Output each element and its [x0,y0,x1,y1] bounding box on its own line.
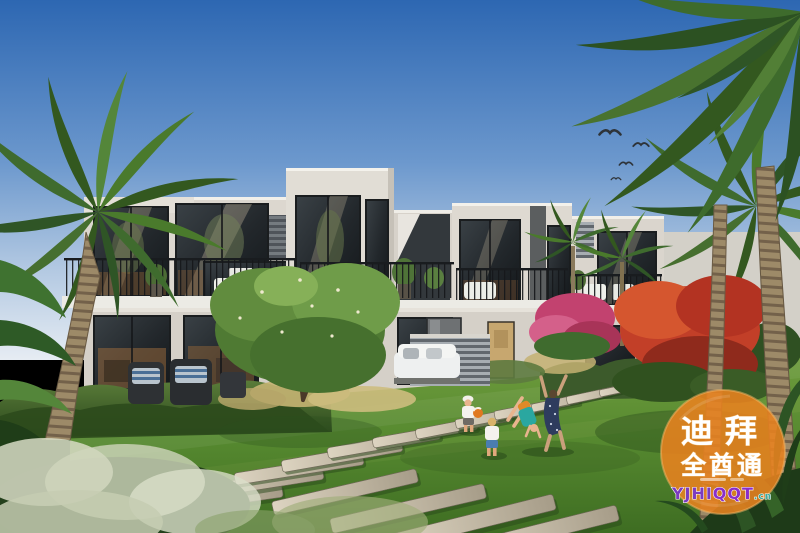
wicker-armchair [170,359,212,405]
outdoor-sofa [394,344,460,384]
watermark-cn-line1: 迪拜 [681,412,769,450]
wicker-armchair [128,362,164,404]
watermark-stamp: 迪拜 全酋通 YJHIQQT.cn [661,390,785,514]
flame-tree [612,275,774,403]
rendering-canvas: 迪拜 全酋通 YJHIQQT.cn [0,0,800,533]
watermark-cn-line2: 全酋通 [680,451,765,480]
side-table [220,372,246,398]
scene: 迪拜 全酋通 YJHIQQT.cn [0,0,800,533]
